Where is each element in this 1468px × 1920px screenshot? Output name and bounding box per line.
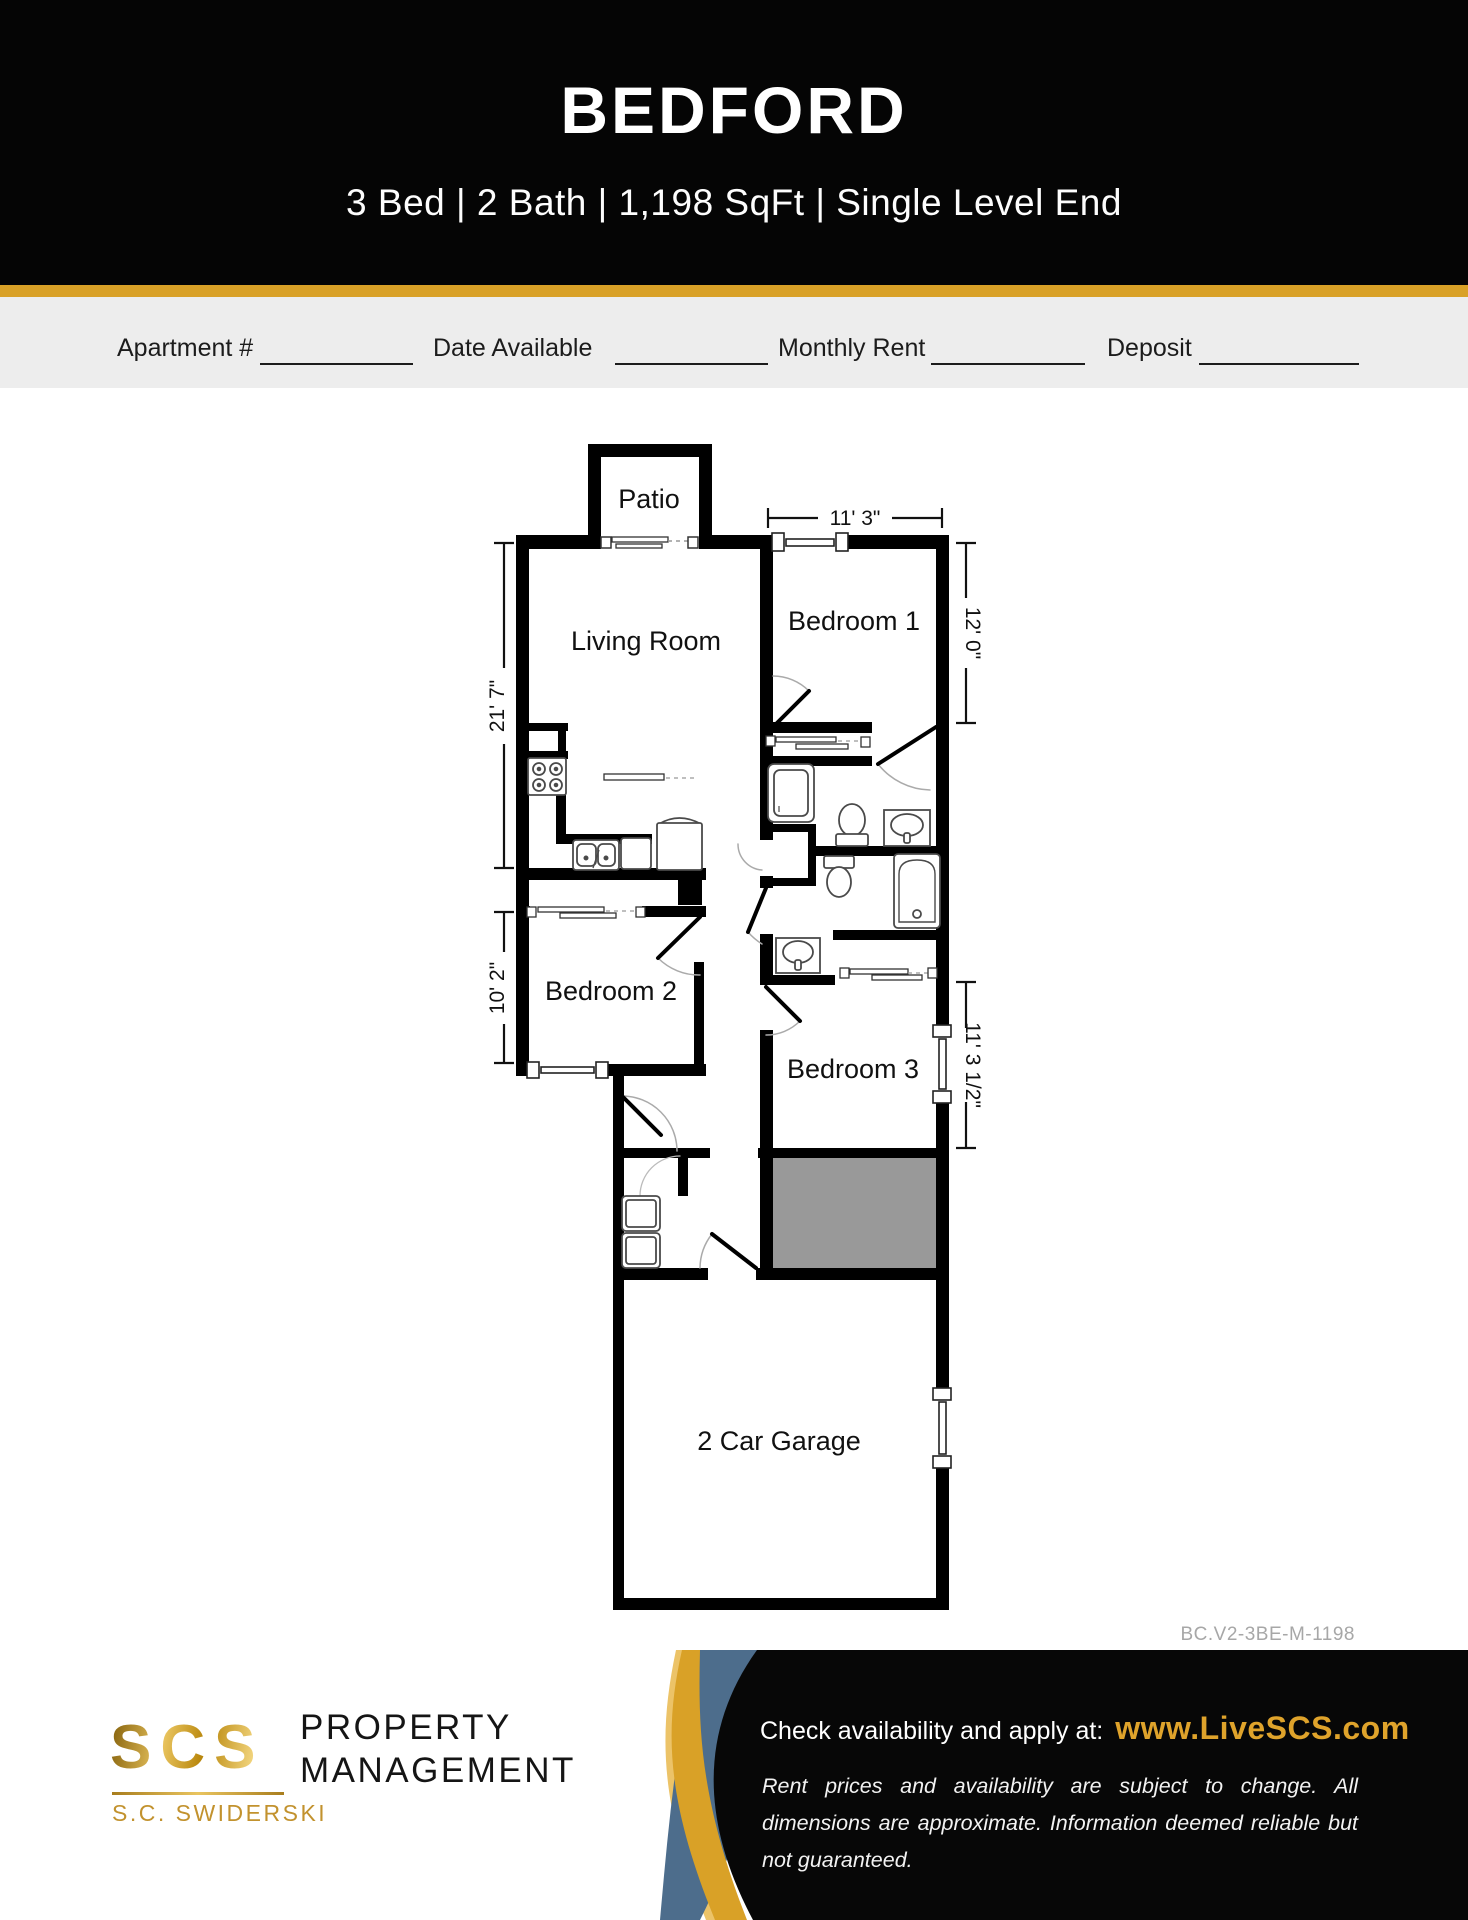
form-strip: Apartment # Date Available Monthly Rent … [0,297,1468,388]
shower [768,764,814,822]
scs-logo-rule [112,1792,284,1795]
scs-company-name: S.C. SWIDERSKI [112,1800,327,1827]
dim-bed2-height-label: 10' 2" [486,962,509,1014]
utility-room [768,1157,936,1269]
dim-bed1-height-label: 12' 0" [961,607,984,659]
bedroom1-closet-slider [766,736,870,749]
washer [622,1196,660,1231]
vanity-sink-bathA [884,810,930,846]
page-title: BEDFORD [0,72,1468,148]
apartment-blank [260,363,413,365]
bedroom2-closet-slider [527,906,645,918]
brand-name: PROPERTY MANAGEMENT [300,1706,576,1792]
bedroom3-door [766,987,800,1035]
plan-code: BC.V2-3BE-M-1198 [1181,1624,1356,1646]
deposit-blank [1199,363,1359,365]
patio-slider-door [601,535,699,549]
garage-window [933,1388,951,1468]
garage-entry-door [700,1234,756,1268]
hall-bathA-door [738,844,762,870]
date-available-label: Date Available [433,334,592,363]
bedroom1-window [772,533,848,551]
bedroom2-window [527,1062,608,1078]
scs-logo: SCS [110,1712,264,1783]
bedroom1-door [773,676,809,727]
bathroomA-door [878,727,936,790]
garage-label: 2 Car Garage [697,1426,861,1456]
bedroom2-door [658,917,700,975]
monthly-rent-label: Monthly Rent [778,334,925,363]
dim-bed3-height-label: 11' 3 1/2" [961,1022,984,1108]
bedroom1-label: Bedroom 1 [788,606,920,636]
dim-bed1-width-label: 11' 3" [830,507,881,530]
deposit-label: Deposit [1107,334,1192,363]
apartment-label: Apartment # [117,334,253,363]
dim-living-height-label: 21' 7" [486,680,509,732]
disclaimer-text: Rent prices and availability are subject… [762,1768,1358,1879]
monthly-rent-blank [931,363,1085,365]
bedroom2-label: Bedroom 2 [545,976,677,1006]
cta-row: Check availability and apply at: www.Liv… [760,1710,1420,1747]
patio-label: Patio [618,484,680,514]
bathtub [894,854,940,928]
stove [528,758,566,795]
vanity-sink-hall [776,938,820,973]
toilet-bathA [836,804,868,846]
kitchen-pantry-slider [604,774,694,780]
floor-plan: Patio Living Room Bedroom 1 Bedroom 2 Be… [440,420,1000,1650]
cta-text: Check availability and apply at: [760,1717,1103,1746]
brand-line1: PROPERTY [300,1706,576,1749]
gold-divider [0,285,1468,297]
page-subtitle: 3 Bed | 2 Bath | 1,198 SqFt | Single Lev… [0,182,1468,224]
dryer [622,1233,660,1268]
dishwasher [621,838,651,869]
toilet-bathB [824,856,854,897]
kitchen-sink [573,840,619,870]
bedroom3-label: Bedroom 3 [787,1054,919,1084]
header-band: BEDFORD 3 Bed | 2 Bath | 1,198 SqFt | Si… [0,0,1468,285]
brand-line2: MANAGEMENT [300,1749,576,1792]
front-door [622,1096,680,1196]
bedroom3-window [933,1025,951,1103]
bedroom3-closet-slider [840,968,937,980]
refrigerator [657,818,702,870]
website-link[interactable]: www.LiveSCS.com [1115,1710,1409,1747]
date-available-blank [615,363,768,365]
living-room-label: Living Room [571,626,721,656]
